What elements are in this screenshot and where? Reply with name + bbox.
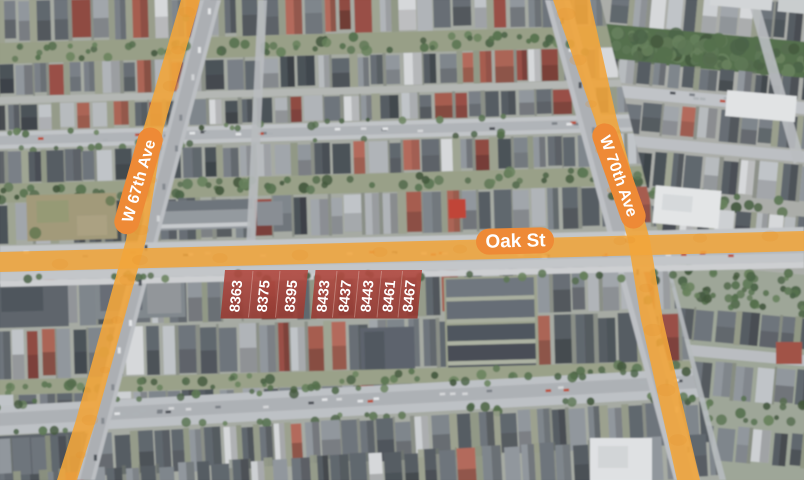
svg-text:8461: 8461 [380, 279, 399, 313]
svg-text:Oak St: Oak St [485, 230, 546, 253]
svg-text:8467: 8467 [400, 279, 419, 313]
svg-text:8437: 8437 [336, 279, 355, 313]
svg-text:8433: 8433 [314, 279, 333, 313]
svg-text:8363: 8363 [227, 279, 246, 313]
svg-text:8443: 8443 [358, 279, 377, 313]
svg-text:8375: 8375 [255, 279, 274, 313]
svg-text:8395: 8395 [282, 279, 301, 313]
